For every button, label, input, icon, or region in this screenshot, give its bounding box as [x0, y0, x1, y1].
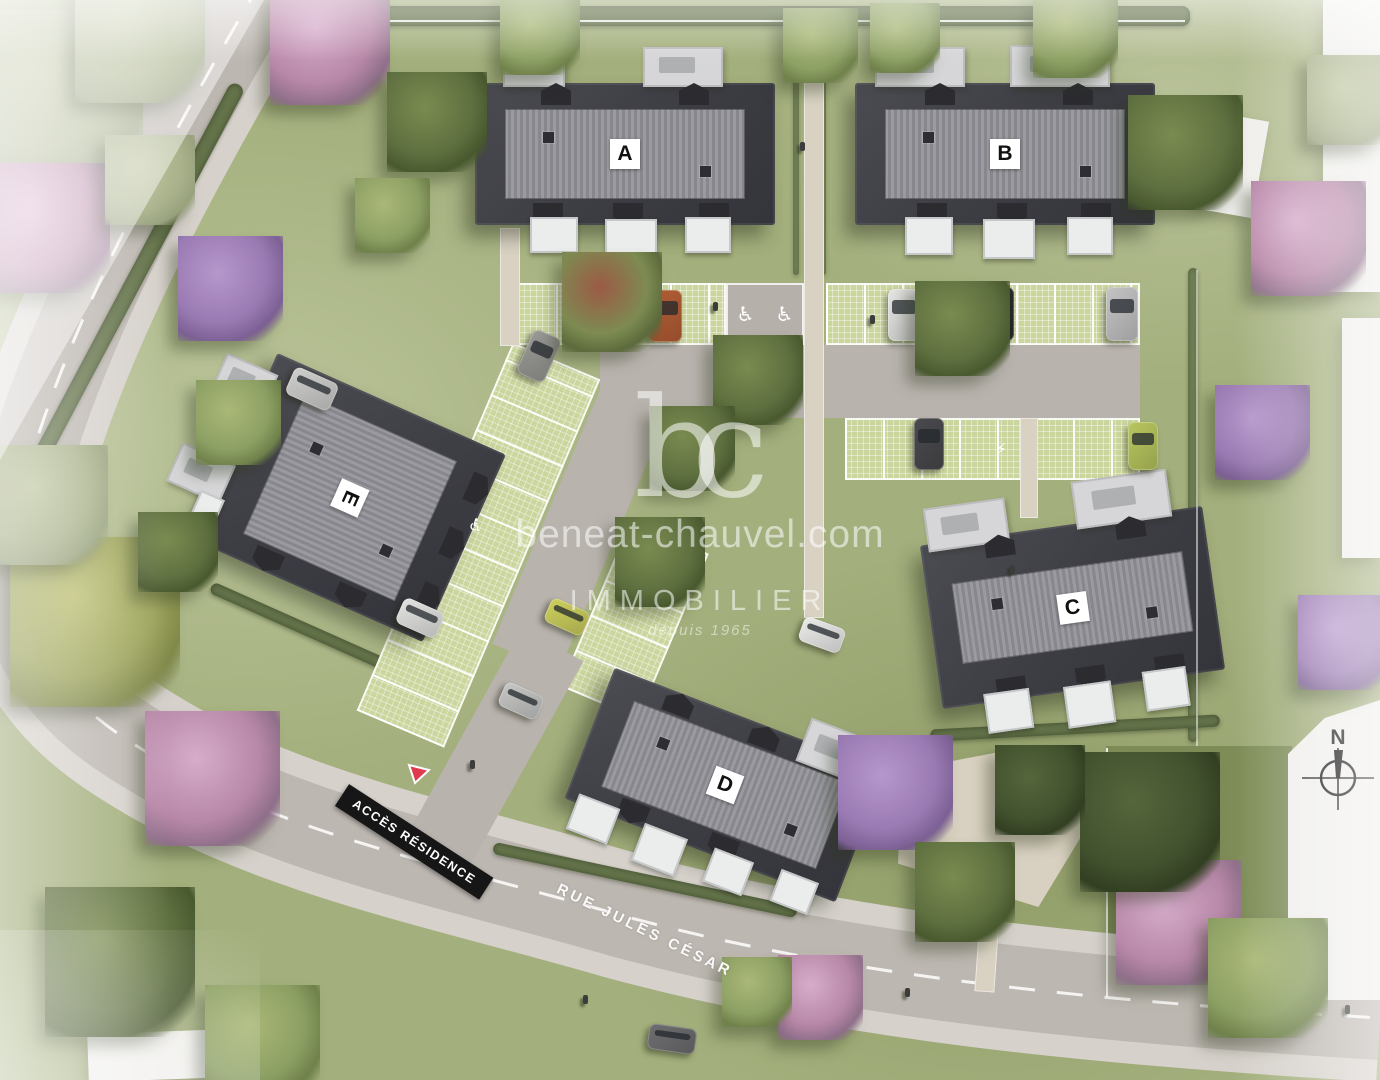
- building-label-a: A: [610, 139, 640, 169]
- building-letter: B: [997, 142, 1012, 166]
- tree: [1033, 0, 1118, 78]
- wheelchair-icon: ♿: [776, 304, 794, 324]
- car-windshield: [892, 300, 916, 314]
- car-windshield: [806, 622, 840, 640]
- person: [1010, 565, 1015, 574]
- person: [470, 760, 475, 769]
- compass-rose: N: [1300, 712, 1376, 812]
- wheelchair-icon: ♿: [737, 304, 755, 324]
- building-b: B: [855, 83, 1155, 225]
- blossom-tree: [1215, 385, 1310, 480]
- tree: [0, 445, 108, 565]
- balcony: [1142, 666, 1191, 712]
- tree: [205, 985, 320, 1080]
- balcony: [983, 219, 1035, 259]
- footpath: [500, 228, 520, 346]
- tree: [1080, 752, 1220, 892]
- tree: [1208, 918, 1328, 1038]
- tree: [387, 72, 487, 172]
- blossom-tree: [0, 163, 110, 293]
- access-arrow-icon: [406, 762, 432, 786]
- parked-car: [914, 418, 944, 470]
- building-label-b: B: [990, 139, 1020, 169]
- footpath: [804, 58, 824, 618]
- parked-car: [1128, 422, 1158, 470]
- balcony: [983, 688, 1034, 734]
- tree: [1307, 55, 1380, 145]
- tree: [615, 517, 705, 607]
- tree: [45, 887, 195, 1037]
- building-letter: C: [1063, 595, 1081, 621]
- balcony: [530, 217, 578, 253]
- person: [800, 142, 805, 151]
- car-windshield: [654, 1029, 691, 1041]
- building-letter: E: [336, 486, 364, 509]
- tree: [650, 406, 735, 491]
- site-plan: ♿ ♿ ⚡ ♿ A: [0, 0, 1380, 1080]
- car-windshield: [1132, 433, 1155, 445]
- tree: [562, 252, 662, 352]
- car-windshield: [1110, 299, 1134, 313]
- neighbor-building: [87, 1030, 209, 1080]
- balcony: [1067, 217, 1113, 255]
- person: [870, 315, 875, 324]
- footpath: [1020, 418, 1038, 518]
- balcony: [905, 217, 953, 255]
- blossom-tree: [145, 711, 280, 846]
- car-windshield: [918, 429, 941, 443]
- tree: [783, 8, 858, 83]
- balcony: [685, 217, 731, 253]
- building-label-c: C: [1056, 591, 1090, 625]
- building-a: A: [475, 83, 775, 225]
- blossom-tree: [1298, 595, 1380, 690]
- parking-row-south: [845, 418, 1140, 480]
- tree: [196, 380, 281, 465]
- tree: [870, 3, 940, 73]
- blossom-tree: [270, 0, 390, 105]
- compass-north-label: N: [1330, 726, 1345, 749]
- tree: [105, 135, 195, 225]
- tree: [138, 512, 218, 592]
- person: [583, 995, 588, 1004]
- ev-charging-icon: ⚡: [996, 440, 1007, 458]
- person: [713, 302, 718, 311]
- building-letter: D: [714, 771, 737, 799]
- blossom-tree: [1251, 181, 1366, 296]
- neighbor-building: [1342, 318, 1380, 558]
- building-letter: A: [617, 142, 632, 166]
- tree: [1128, 95, 1243, 210]
- parked-car: [1106, 287, 1138, 341]
- tree: [500, 0, 580, 75]
- hedge: [793, 60, 799, 275]
- tree: [355, 178, 430, 253]
- tree: [75, 0, 205, 103]
- person: [1345, 1005, 1350, 1014]
- tree: [995, 745, 1085, 835]
- person: [905, 988, 910, 997]
- roof-terrace: [643, 47, 723, 87]
- property-line: [1196, 270, 1198, 746]
- blossom-tree: [838, 735, 953, 850]
- tree: [915, 281, 1010, 376]
- blossom-tree: [178, 236, 283, 341]
- tree: [915, 842, 1015, 942]
- balcony: [1063, 680, 1116, 728]
- car-windshield: [529, 339, 555, 360]
- building-c: C: [920, 506, 1225, 709]
